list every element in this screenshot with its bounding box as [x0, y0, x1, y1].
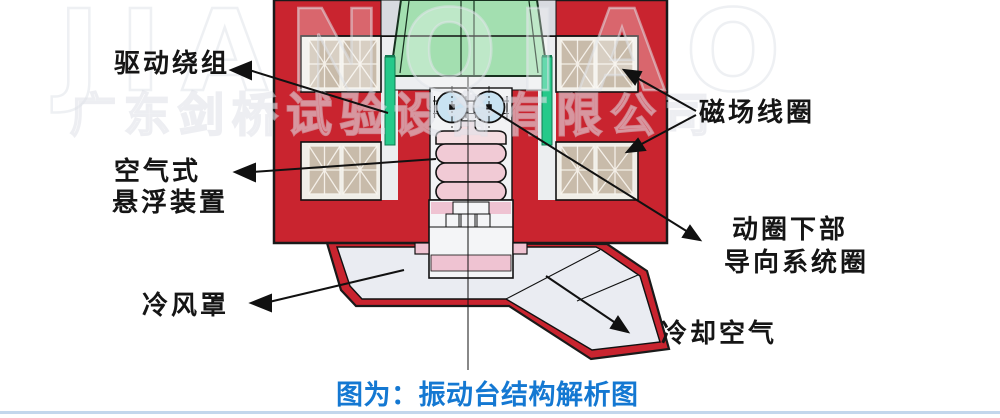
arrowhead — [235, 164, 255, 181]
label-moving-coil-guide-1: 动圈下部 — [732, 216, 848, 245]
label-field-coil: 磁场线圈 — [699, 99, 815, 128]
lower-guide-column — [415, 200, 527, 278]
watermark-company: 广东剑桥试验设备有限公司 — [70, 88, 718, 142]
label-air-suspension-2: 悬浮装置 — [112, 189, 228, 218]
label-drive-winding: 驱动绕组 — [114, 50, 230, 79]
arrowhead — [251, 295, 271, 311]
arrowhead — [683, 226, 700, 240]
shaker-structure-figure: JIANQIAO 广东剑桥试验设备有限公司 — [0, 0, 1000, 418]
label-cooling-air: 冷却空气 — [661, 320, 777, 349]
bottom-divider — [0, 411, 1000, 414]
label-moving-coil-guide-2: 导向系统圈 — [724, 249, 869, 278]
figure-caption: 图为：振动台结构解析图 — [336, 373, 639, 412]
label-air-suspension-1: 空气式 — [114, 158, 201, 187]
label-cold-air-hood: 冷风罩 — [142, 292, 229, 321]
